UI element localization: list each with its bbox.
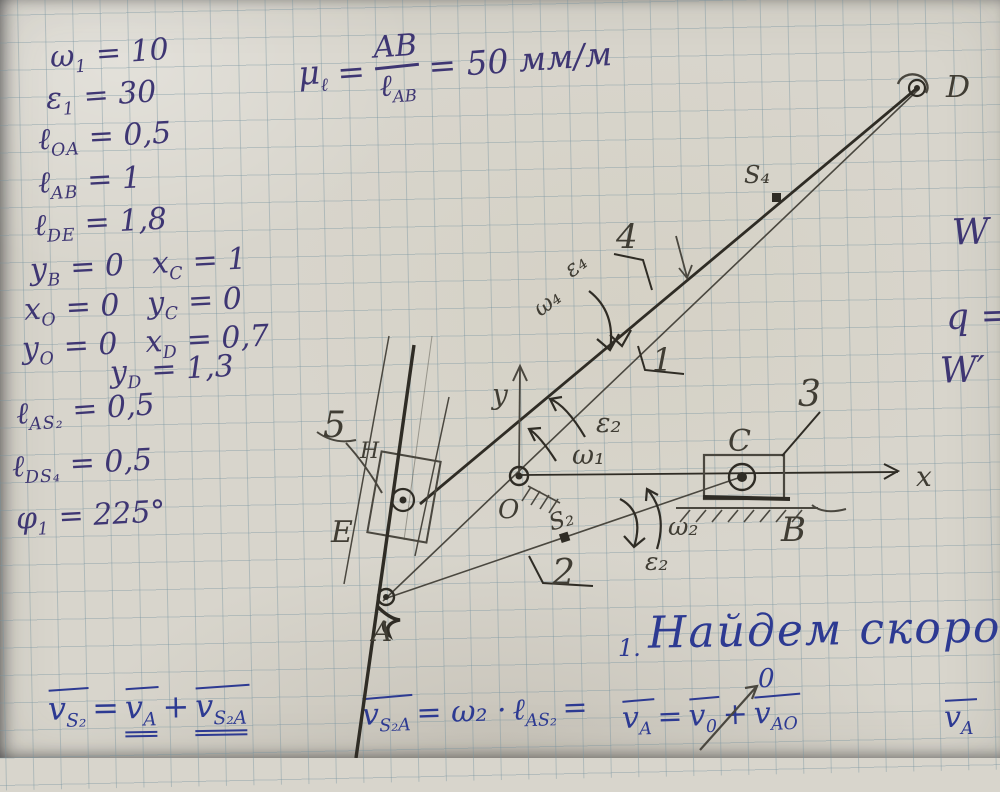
mu-symbol: μℓ — [297, 52, 329, 98]
equals-sign: = — [336, 52, 366, 93]
margin-note-w-prime: W′ — [939, 349, 986, 392]
margin-note-w: W — [951, 211, 989, 253]
given-row: ℓDE = 1,8 — [33, 202, 168, 248]
given-row: yD = 1,3 — [109, 349, 235, 394]
given-row: ℓDS₄ = 0,5 — [11, 442, 153, 488]
given-row: ε1 = 30 — [45, 74, 158, 121]
velocity-equation-s2: vS₂ = vA + vS₂A — [48, 686, 248, 739]
given-row: ℓOA = 0,5 — [37, 116, 172, 162]
margin-note-q: q = — [945, 295, 1000, 338]
notebook-photo: { "given": { "rows": [ {"s1":"ω","sub1":… — [0, 0, 1000, 758]
given-row: ℓAB = 1 — [37, 160, 142, 204]
scale-fraction: AB ℓAB — [372, 31, 421, 107]
crossed-out-v0: v0 — [688, 698, 717, 738]
section-number: 1. — [618, 634, 641, 662]
velocity-equation-a: vA = v0 + vAO — [621, 695, 798, 740]
velocity-va-label: vA — [944, 700, 974, 739]
given-row: ω1 = 10 — [49, 32, 170, 79]
scale-value: = 50 мм/м — [427, 34, 613, 86]
given-row: φ1 = 225° — [15, 494, 166, 541]
section-title: Найдем скорост — [648, 600, 1000, 658]
zero-annotation: 0 — [758, 664, 775, 694]
velocity-equation-s2a: vS₂A = ω₂ · ℓAS₂ = — [361, 690, 588, 737]
